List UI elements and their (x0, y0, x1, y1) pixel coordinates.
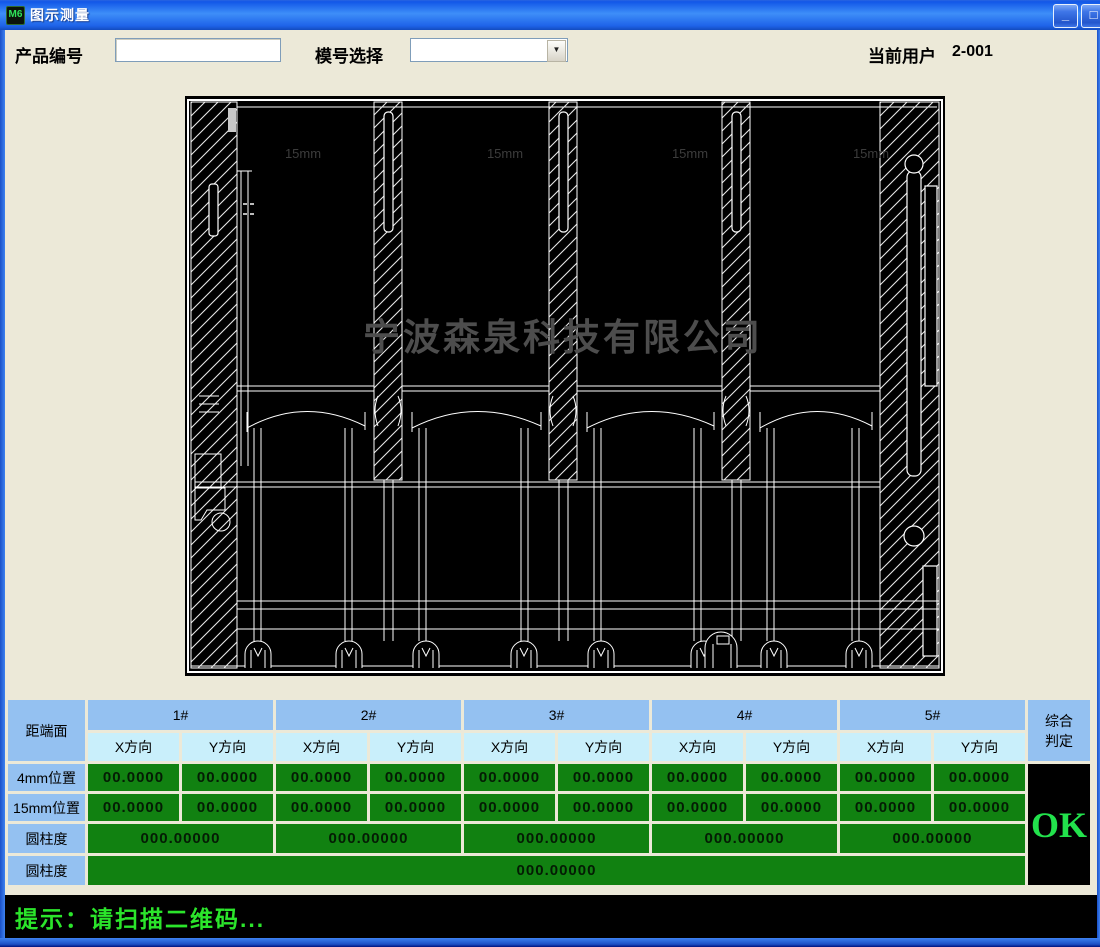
sub-header-x: X方向 (652, 733, 743, 761)
verdict-header-line2: 判定 (1045, 731, 1073, 751)
measurement-table: 距端面 1# 2# 3# 4# 5# X方向 Y方向 X方向 Y方向 X方向 Y… (8, 700, 1090, 885)
value-cell: 00.0000 (840, 764, 931, 791)
dropdown-arrow-icon[interactable]: ▼ (547, 40, 566, 62)
group-header-2: 2# (276, 700, 461, 730)
sub-header-x: X方向 (464, 733, 555, 761)
value-cell: 00.0000 (276, 794, 367, 821)
row-label-4mm: 4mm位置 (8, 764, 85, 791)
minimize-button[interactable]: _ (1053, 4, 1078, 28)
group-header-1: 1# (88, 700, 273, 730)
cursor-mark (228, 108, 236, 132)
company-watermark: 宁波森泉科技有限公司 (363, 317, 763, 358)
mold-select-dropdown[interactable]: ▼ (410, 38, 568, 62)
row-label-cylindricity: 圆柱度 (8, 824, 85, 853)
pin-dim-label: 15mm (853, 146, 889, 161)
value-cell: 00.0000 (182, 794, 273, 821)
value-cell: 00.0000 (370, 764, 461, 791)
value-cell: 00.0000 (746, 794, 837, 821)
product-number-label: 产品编号 (15, 42, 83, 67)
value-cell: 00.0000 (182, 764, 273, 791)
table-corner-header: 距端面 (8, 700, 85, 761)
product-number-input[interactable] (115, 38, 281, 62)
window-border-left (0, 30, 5, 938)
sub-header-x: X方向 (276, 733, 367, 761)
value-cell: 00.0000 (464, 764, 555, 791)
value-cell: 00.0000 (276, 764, 367, 791)
overall-verdict-value: OK (1028, 764, 1090, 885)
verdict-header: 综合 判定 (1028, 700, 1090, 761)
window-border-bottom (0, 938, 1100, 947)
window-title: 图示测量 (30, 5, 90, 25)
value-cell: 00.0000 (370, 794, 461, 821)
pin-dim-label: 15mm (487, 146, 523, 161)
value-cell: 00.0000 (88, 794, 179, 821)
cylindricity-cell: 000.00000 (276, 824, 461, 853)
mold-select-label: 模号选择 (315, 42, 383, 67)
cad-drawing-canvas: 15mm 15mm 15mm 15mm 宁波森泉科技有限公司 (185, 96, 945, 676)
sub-header-y: Y方向 (934, 733, 1025, 761)
value-cell: 00.0000 (652, 764, 743, 791)
cylindricity-cell: 000.00000 (88, 824, 273, 853)
verdict-header-line1: 综合 (1045, 711, 1073, 731)
value-cell: 00.0000 (934, 764, 1025, 791)
current-user-value: 2-001 (952, 43, 993, 61)
value-cell: 00.0000 (558, 794, 649, 821)
sub-header-y: Y方向 (558, 733, 649, 761)
pin-dim-label: 15mm (672, 146, 708, 161)
sub-header-y: Y方向 (370, 733, 461, 761)
value-cell: 00.0000 (746, 764, 837, 791)
group-header-4: 4# (652, 700, 837, 730)
status-bar: 提示：请扫描二维码... (5, 895, 1097, 938)
cylindricity-cell: 000.00000 (840, 824, 1025, 853)
cylindricity-cell: 000.00000 (652, 824, 837, 853)
sub-header-x: X方向 (88, 733, 179, 761)
value-cell: 00.0000 (88, 764, 179, 791)
sub-header-x: X方向 (840, 733, 931, 761)
toolbar: 产品编号 模号选择 ▼ 当前用户 2-001 (5, 30, 1097, 96)
mold-section-drawing: 15mm 15mm 15mm 15mm 宁波森泉科技有限公司 (185, 96, 945, 676)
app-icon: M6 (6, 6, 25, 25)
value-cell: 00.0000 (652, 794, 743, 821)
row-label-cylindricity-overall: 圆柱度 (8, 856, 85, 885)
value-cell: 00.0000 (558, 764, 649, 791)
cylindricity-overall-cell: 000.00000 (88, 856, 1025, 885)
value-cell: 00.0000 (840, 794, 931, 821)
maximize-button[interactable]: □ (1081, 4, 1100, 28)
sub-header-y: Y方向 (746, 733, 837, 761)
sub-header-y: Y方向 (182, 733, 273, 761)
group-header-3: 3# (464, 700, 649, 730)
current-user-label: 当前用户 (868, 42, 936, 67)
title-bar: M6 图示测量 _ □ (0, 0, 1100, 30)
value-cell: 00.0000 (934, 794, 1025, 821)
cylindricity-cell: 000.00000 (464, 824, 649, 853)
status-message: 提示：请扫描二维码... (5, 900, 265, 934)
group-header-5: 5# (840, 700, 1025, 730)
row-label-15mm: 15mm位置 (8, 794, 85, 821)
pin-dim-label: 15mm (285, 146, 321, 161)
value-cell: 00.0000 (464, 794, 555, 821)
